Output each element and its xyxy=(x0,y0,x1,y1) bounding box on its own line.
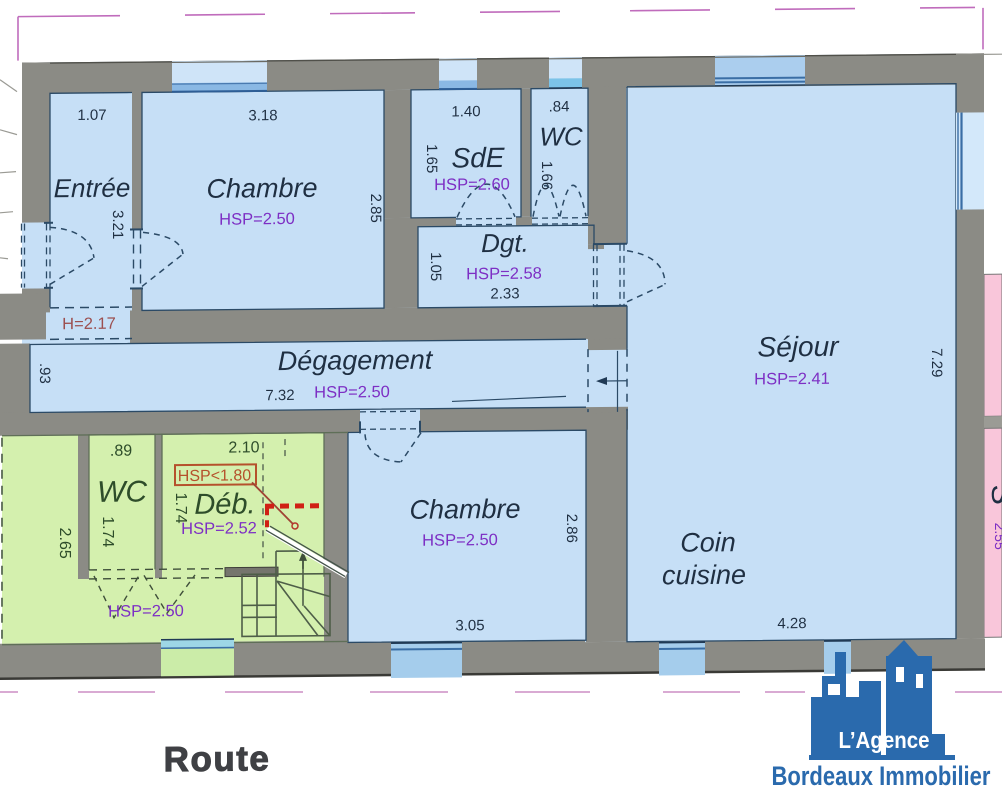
svg-text:HSP=2.50: HSP=2.50 xyxy=(219,210,295,229)
svg-text:Chambre: Chambre xyxy=(409,494,520,525)
svg-text:HSP=2.50: HSP=2.50 xyxy=(422,531,498,550)
svg-text:2.85: 2.85 xyxy=(367,194,384,223)
svg-text:2.33: 2.33 xyxy=(490,285,519,302)
svg-text:7.29: 7.29 xyxy=(928,348,945,377)
svg-text:7.32: 7.32 xyxy=(265,387,294,404)
svg-text:1.65: 1.65 xyxy=(423,144,440,173)
svg-text:HSP<1.80: HSP<1.80 xyxy=(178,467,251,485)
svg-text:.93: .93 xyxy=(36,363,53,384)
svg-text:1.66: 1.66 xyxy=(538,161,555,190)
svg-text:HSP=2.60: HSP=2.60 xyxy=(434,175,510,194)
svg-text:3.05: 3.05 xyxy=(455,617,484,634)
svg-text:3.21: 3.21 xyxy=(109,210,126,239)
svg-text:SdE: SdE xyxy=(452,142,505,174)
svg-text:Route: Route xyxy=(164,739,271,779)
svg-text:H=2.17: H=2.17 xyxy=(62,315,116,334)
svg-text:Chambre: Chambre xyxy=(206,173,317,204)
svg-text:.89: .89 xyxy=(110,443,132,460)
svg-text:2.10: 2.10 xyxy=(228,439,259,456)
svg-text:.84: .84 xyxy=(549,98,570,115)
svg-text:WC: WC xyxy=(539,121,583,151)
svg-text:2.65: 2.65 xyxy=(56,528,73,559)
svg-text:2.86: 2.86 xyxy=(563,514,580,543)
svg-text:WC: WC xyxy=(97,475,147,508)
svg-text:Dgt.: Dgt. xyxy=(481,228,529,258)
svg-text:HSP=2.52: HSP=2.52 xyxy=(181,519,257,538)
svg-text:1.05: 1.05 xyxy=(427,252,444,281)
svg-text:HSP=2.41: HSP=2.41 xyxy=(754,370,830,389)
svg-text:1.07: 1.07 xyxy=(77,107,106,124)
svg-text:L’Agence: L’Agence xyxy=(839,727,930,753)
svg-text:Dégagement: Dégagement xyxy=(278,345,434,376)
svg-text:HSP=2.50: HSP=2.50 xyxy=(108,602,184,621)
svg-text:2.55: 2.55 xyxy=(992,522,1002,550)
svg-text:cuisine: cuisine xyxy=(662,560,746,591)
svg-text:4.28: 4.28 xyxy=(777,615,806,632)
svg-text:Déb.: Déb. xyxy=(194,488,255,521)
svg-text:HSP=2.50: HSP=2.50 xyxy=(314,383,390,402)
svg-text:1.74: 1.74 xyxy=(99,516,116,547)
svg-text:1.40: 1.40 xyxy=(451,103,480,120)
svg-text:Entrée: Entrée xyxy=(54,173,131,204)
svg-text:Séjour: Séjour xyxy=(758,331,841,363)
svg-text:HSP=2.58: HSP=2.58 xyxy=(466,265,542,284)
svg-text:Coin: Coin xyxy=(680,527,736,558)
svg-text:S: S xyxy=(985,485,1002,505)
svg-text:3.18: 3.18 xyxy=(248,107,277,124)
svg-text:Bordeaux Immobilier: Bordeaux Immobilier xyxy=(772,761,991,791)
